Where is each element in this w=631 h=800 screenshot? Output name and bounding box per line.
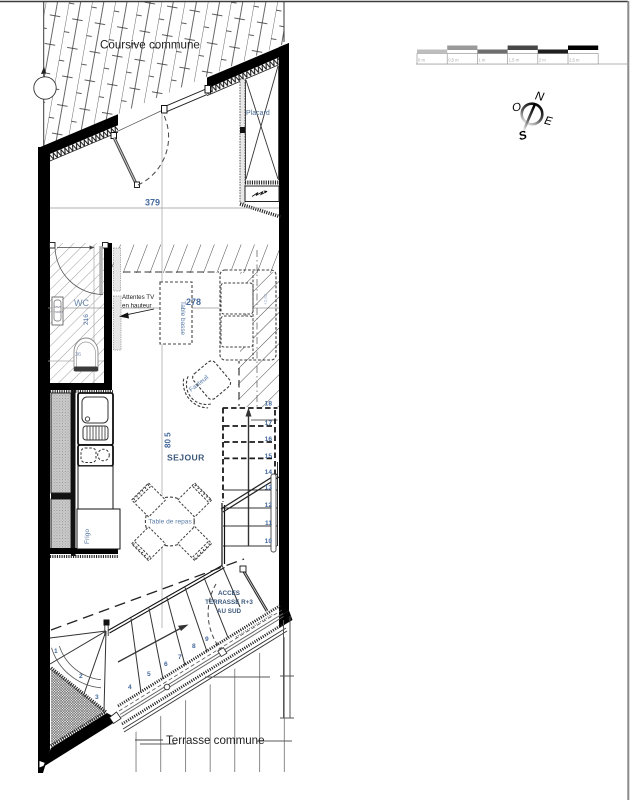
- svg-text:AU SUD: AU SUD: [217, 608, 242, 615]
- svg-text:Terrasse commune: Terrasse commune: [166, 734, 265, 747]
- svg-text:80 5: 80 5: [164, 432, 173, 448]
- svg-text:4: 4: [128, 684, 132, 691]
- svg-text:0 m: 0 m: [418, 58, 425, 63]
- svg-text:Table de repas: Table de repas: [149, 519, 193, 526]
- svg-text:SEJOUR: SEJOUR: [167, 453, 205, 463]
- svg-text:1: 1: [54, 648, 58, 655]
- svg-text:O: O: [511, 101, 522, 114]
- svg-text:16: 16: [265, 436, 273, 443]
- svg-text:13: 13: [265, 485, 273, 492]
- svg-text:lave: lave: [55, 305, 62, 309]
- svg-text:TERRASSE R+3: TERRASSE R+3: [205, 599, 253, 606]
- svg-text:WC: WC: [74, 298, 89, 308]
- svg-text:2: 2: [79, 673, 83, 680]
- svg-text:en hauteur: en hauteur: [122, 303, 152, 310]
- svg-text:Attentes TV: Attentes TV: [122, 294, 155, 301]
- svg-text:8: 8: [192, 643, 196, 650]
- svg-text:Table basse: Table basse: [179, 301, 186, 336]
- svg-text:Coursive commune: Coursive commune: [100, 39, 200, 52]
- svg-text:mains: mains: [54, 310, 64, 314]
- svg-text:15: 15: [265, 453, 273, 460]
- svg-text:2,5 m: 2,5 m: [569, 58, 580, 63]
- svg-text:9: 9: [205, 636, 209, 643]
- svg-text:278: 278: [186, 297, 201, 307]
- svg-text:+2,62: +2,62: [263, 293, 268, 305]
- svg-text:ACCES: ACCES: [218, 590, 240, 597]
- svg-text:379: 379: [145, 198, 160, 208]
- svg-text:10: 10: [265, 538, 273, 545]
- svg-text:2 m: 2 m: [539, 58, 546, 63]
- svg-text:0,5 m: 0,5 m: [448, 58, 459, 63]
- svg-text:Placard: Placard: [246, 110, 270, 117]
- svg-text:17: 17: [265, 420, 273, 427]
- svg-text:1 m: 1 m: [478, 58, 485, 63]
- svg-text:Frigo: Frigo: [84, 529, 91, 544]
- svg-text:12: 12: [265, 502, 273, 509]
- svg-text:36: 36: [75, 352, 81, 358]
- svg-text:14: 14: [265, 469, 273, 476]
- svg-text:3: 3: [95, 694, 99, 701]
- svg-text:11: 11: [265, 520, 272, 527]
- svg-text:18: 18: [265, 401, 273, 408]
- svg-text:7: 7: [178, 654, 182, 661]
- svg-text:216: 216: [83, 314, 90, 325]
- svg-text:6: 6: [164, 661, 168, 668]
- svg-text:5: 5: [147, 671, 151, 678]
- svg-text:1,5 m: 1,5 m: [509, 58, 520, 63]
